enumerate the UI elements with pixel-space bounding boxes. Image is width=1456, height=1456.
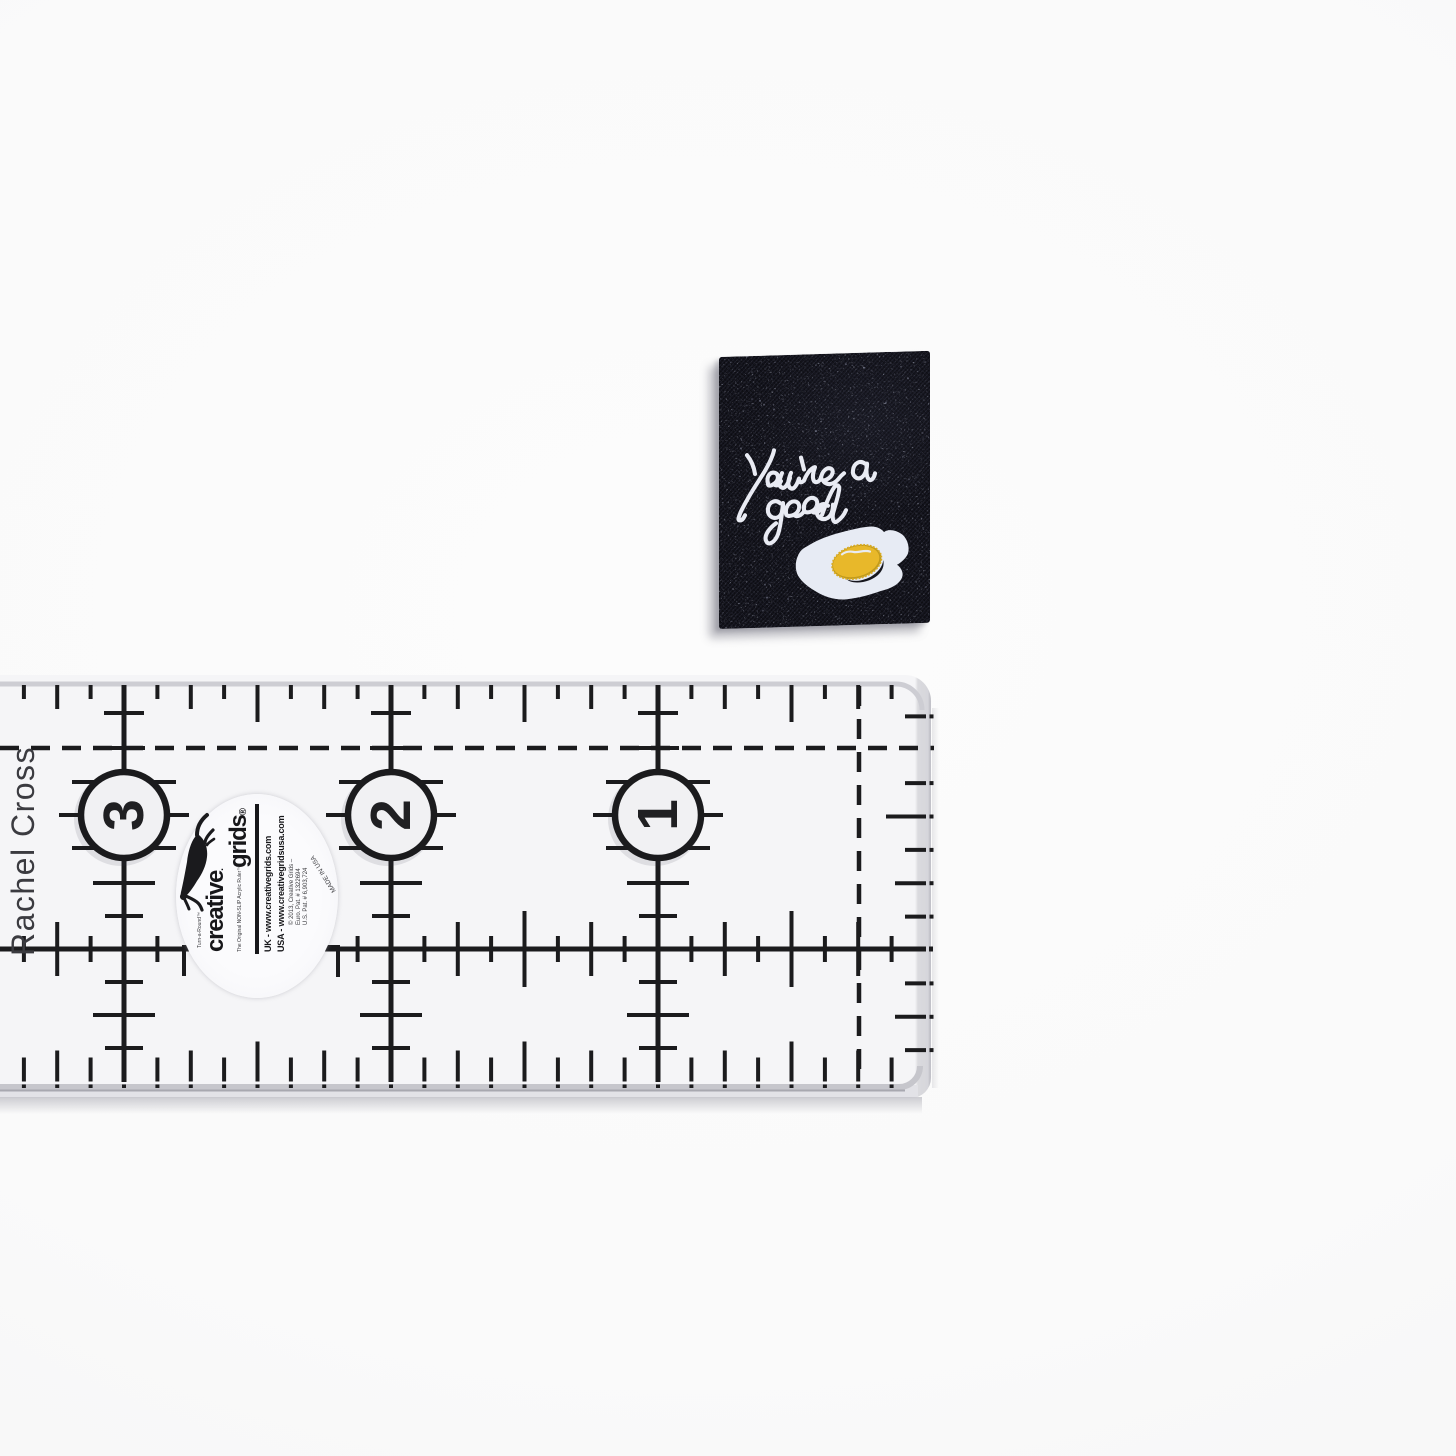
svg-text:1: 1	[626, 799, 690, 831]
svg-text:2: 2	[359, 799, 423, 831]
svg-text:3: 3	[92, 799, 156, 831]
